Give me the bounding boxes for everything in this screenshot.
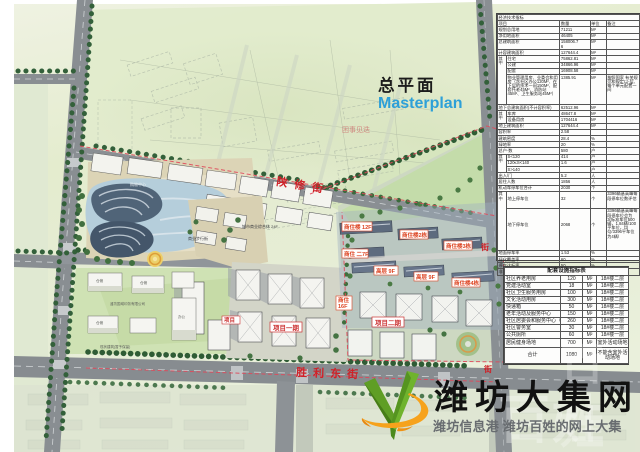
svg-text:商住 二7F: 商住 二7F: [344, 250, 369, 258]
svg-text:困事见迭: 困事见迭: [342, 125, 370, 134]
svg-text:现状建筑(暂予保留): 现状建筑(暂予保留): [100, 344, 130, 349]
svg-text:购物中心: 购物中心: [130, 181, 146, 187]
svg-text:潍坊国域印务有限公司: 潍坊国域印务有限公司: [110, 301, 145, 306]
svg-text:商住楼3栋: 商住楼3栋: [446, 242, 472, 250]
svg-text:商业步行街: 商业步行街: [188, 235, 208, 241]
svg-text:商住楼4栋: 商住楼4栋: [454, 279, 480, 287]
svg-text:商住楼 12F: 商住楼 12F: [344, 223, 372, 231]
svg-text:街: 街: [480, 242, 489, 252]
svg-text:商住: 商住: [338, 296, 350, 304]
svg-text:高层 9F: 高层 9F: [416, 273, 436, 281]
svg-text:街: 街: [483, 364, 492, 374]
svg-text:16F: 16F: [338, 304, 348, 310]
svg-text:城市商业综合体 24F: 城市商业综合体 24F: [242, 223, 279, 229]
svg-text:项目一期: 项目一期: [273, 323, 300, 332]
svg-text:仓储: 仓储: [96, 278, 103, 283]
svg-text:商住楼2栋: 商住楼2栋: [402, 231, 428, 239]
svg-text:仓储: 仓储: [96, 320, 103, 325]
svg-text:高层 9F: 高层 9F: [376, 267, 396, 275]
svg-text:仓储: 仓储: [140, 280, 147, 285]
svg-text:办公: 办公: [178, 314, 185, 319]
svg-text:项目二期: 项目二期: [375, 318, 402, 327]
svg-text:项目: 项目: [224, 316, 235, 324]
